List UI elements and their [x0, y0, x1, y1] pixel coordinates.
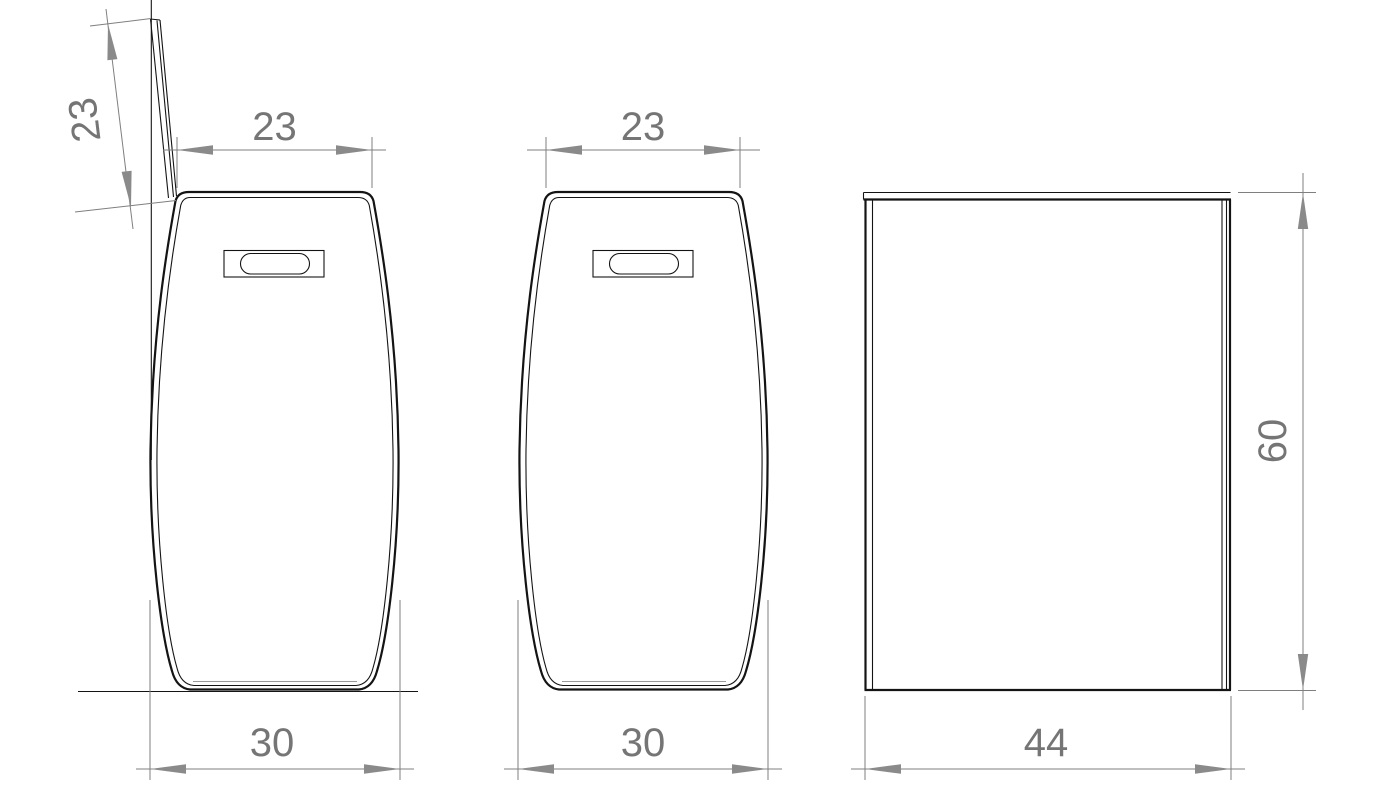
side-body — [865, 200, 1232, 691]
open-lid — [151, 0, 177, 460]
dimension-height: 60 — [1238, 173, 1316, 710]
dim-label-lid-depth: 23 — [60, 95, 109, 145]
dim-label-max-width: 30 — [621, 721, 666, 765]
dimension-top-width: 23 — [527, 105, 760, 188]
lid-top-cap — [151, 19, 161, 20]
side-view: 44 60 — [851, 173, 1316, 780]
dim-label-top-width-open: 23 — [252, 105, 297, 149]
front-view-lid-open: 23 23 30 — [60, 0, 418, 780]
dim-label-top-width: 23 — [621, 105, 666, 149]
dimension-top-width-open: 23 — [163, 105, 386, 188]
dim-label-height: 60 — [1251, 419, 1295, 464]
dim-label-max-width-open: 30 — [250, 721, 295, 765]
front-view: 23 30 — [504, 105, 782, 780]
dim-label-depth: 44 — [1024, 721, 1069, 765]
side-lid-slab — [864, 193, 1232, 200]
dimension-depth: 44 — [851, 696, 1245, 780]
drawing-sheet: 23 23 30 23 — [0, 0, 1400, 800]
technical-drawing-canvas: 23 23 30 23 — [0, 0, 1400, 800]
